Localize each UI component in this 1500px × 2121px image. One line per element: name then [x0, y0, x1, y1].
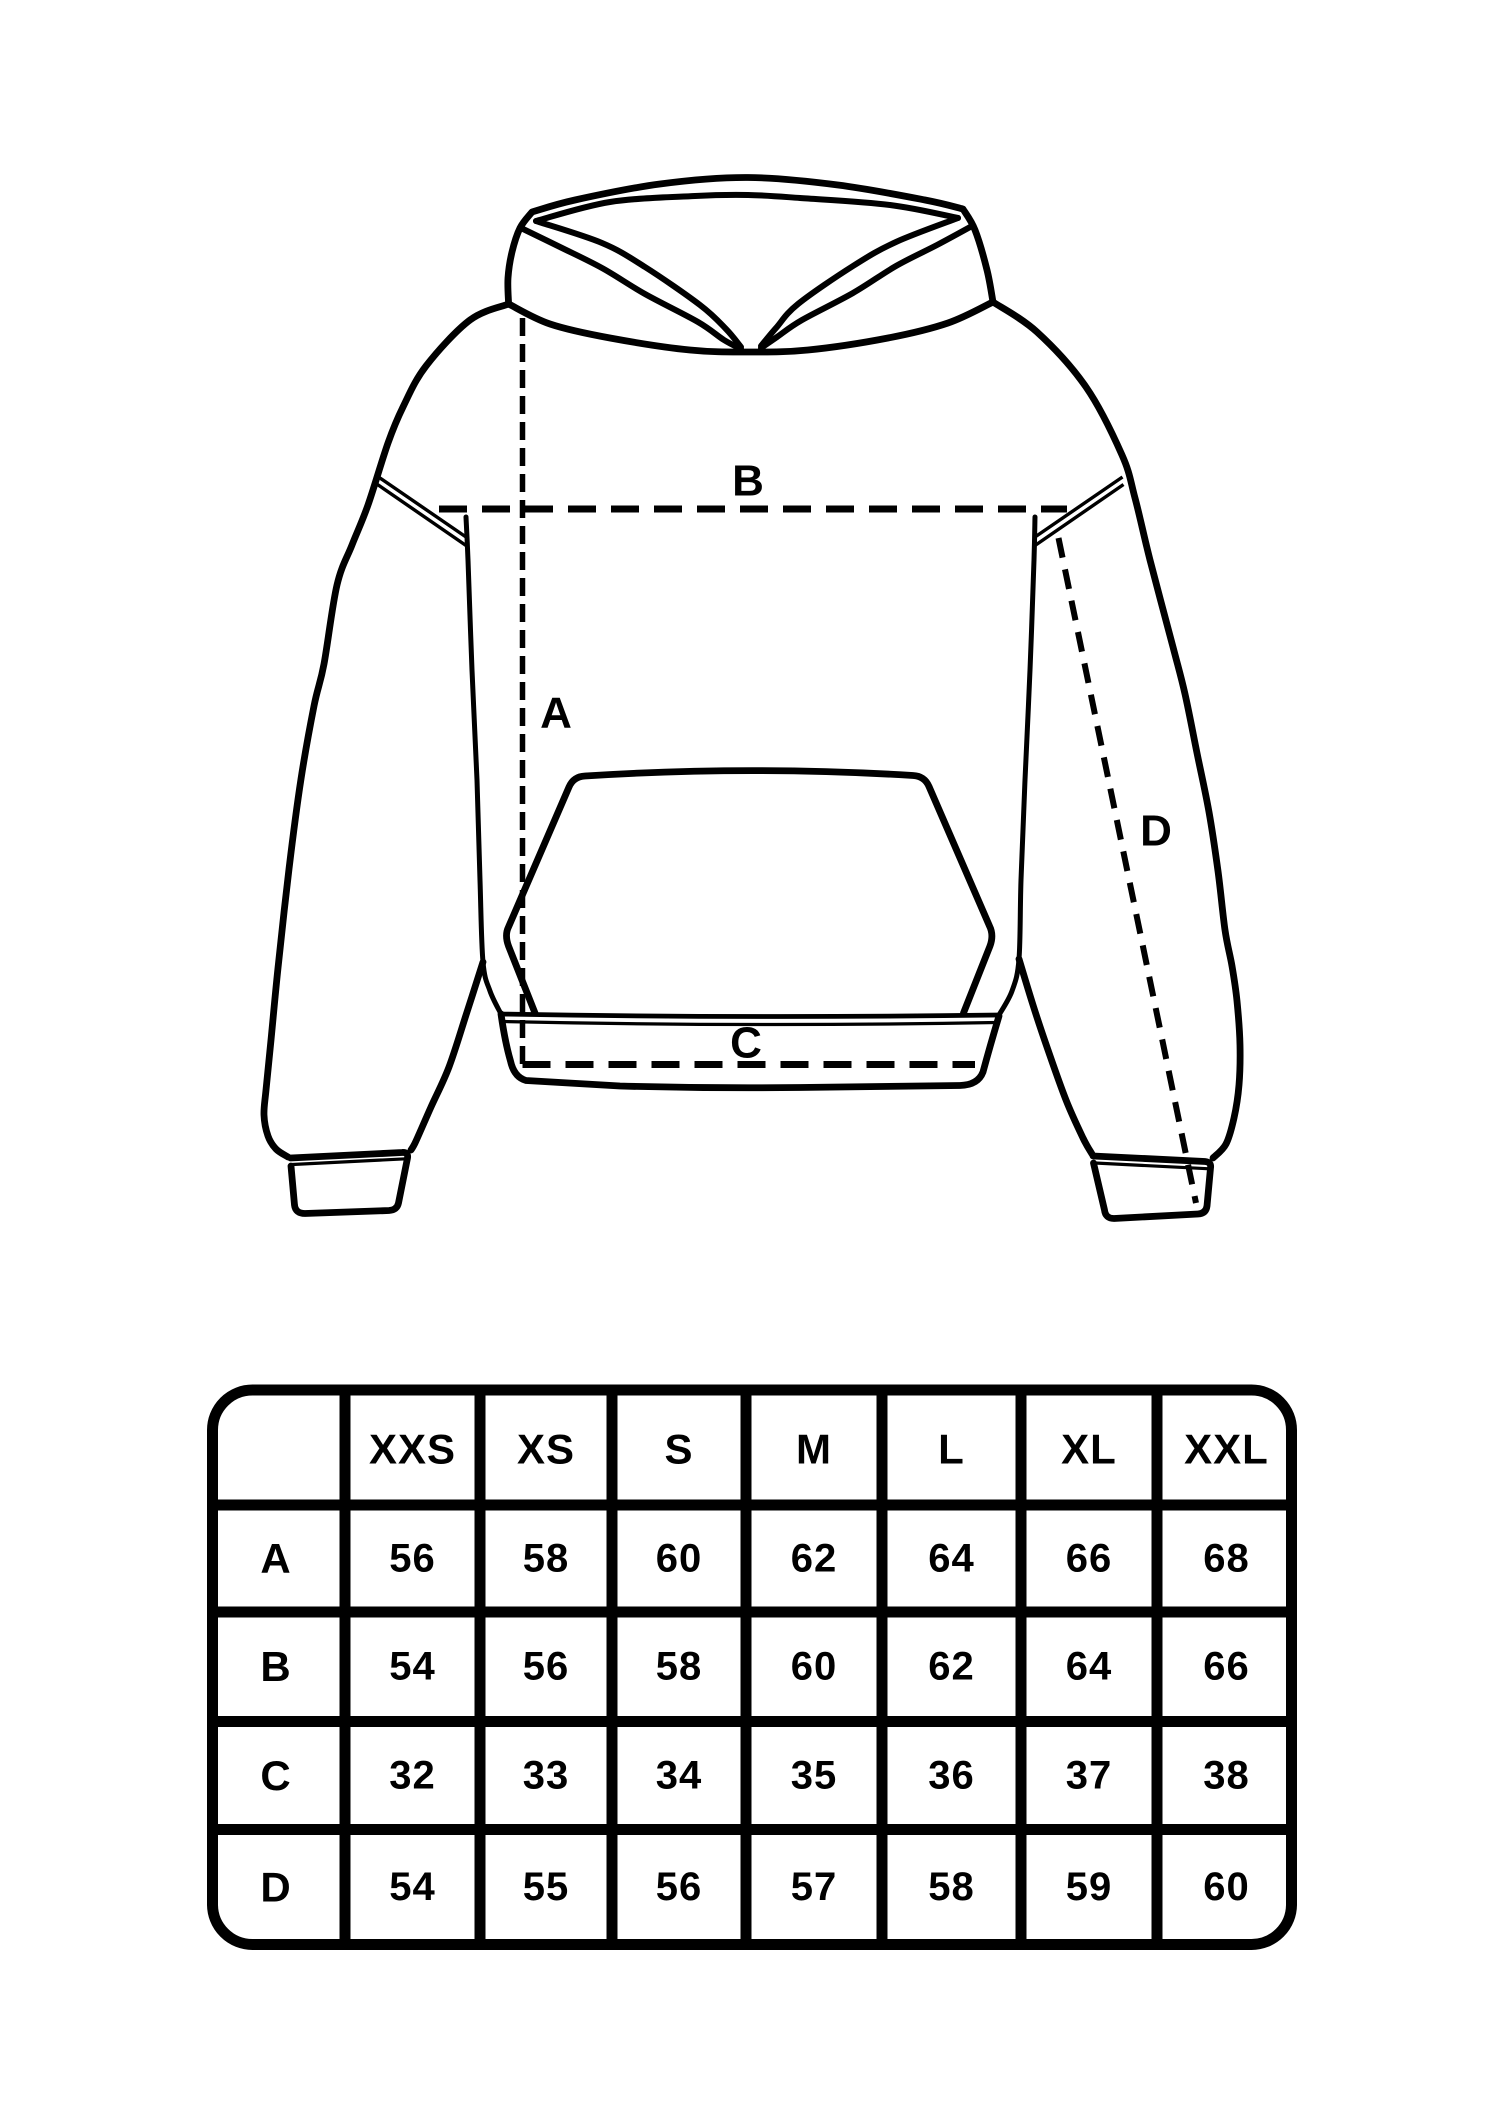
svg-text:66: 66	[1203, 1645, 1250, 1689]
svg-text:A: A	[260, 1535, 291, 1582]
svg-text:62: 62	[928, 1645, 975, 1689]
svg-text:37: 37	[1066, 1754, 1113, 1798]
svg-text:C: C	[260, 1752, 291, 1799]
svg-text:57: 57	[791, 1865, 838, 1909]
svg-text:M: M	[796, 1426, 832, 1473]
svg-text:68: 68	[1203, 1537, 1250, 1581]
svg-text:56: 56	[656, 1865, 703, 1909]
svg-text:60: 60	[791, 1645, 838, 1689]
svg-text:55: 55	[523, 1865, 570, 1909]
svg-text:XXS: XXS	[369, 1426, 456, 1473]
svg-text:B: B	[732, 457, 764, 506]
svg-text:32: 32	[389, 1754, 436, 1798]
svg-text:C: C	[730, 1019, 762, 1068]
svg-text:59: 59	[1066, 1865, 1113, 1909]
svg-text:XXL: XXL	[1184, 1426, 1269, 1473]
svg-text:58: 58	[928, 1865, 975, 1909]
svg-text:33: 33	[523, 1754, 570, 1798]
svg-text:A: A	[540, 689, 572, 738]
svg-text:B: B	[260, 1643, 291, 1690]
svg-text:XL: XL	[1061, 1426, 1117, 1473]
svg-text:L: L	[938, 1426, 965, 1473]
svg-text:35: 35	[791, 1754, 838, 1798]
svg-text:38: 38	[1203, 1754, 1250, 1798]
svg-text:66: 66	[1066, 1537, 1113, 1581]
svg-text:64: 64	[1066, 1645, 1113, 1689]
svg-text:58: 58	[523, 1537, 570, 1581]
svg-text:36: 36	[928, 1754, 975, 1798]
svg-text:54: 54	[389, 1645, 436, 1689]
svg-text:34: 34	[656, 1754, 703, 1798]
svg-text:56: 56	[523, 1645, 570, 1689]
svg-text:62: 62	[791, 1537, 838, 1581]
svg-text:56: 56	[389, 1537, 436, 1581]
svg-text:60: 60	[656, 1537, 703, 1581]
svg-text:S: S	[664, 1426, 693, 1473]
svg-text:D: D	[260, 1864, 291, 1911]
svg-text:58: 58	[656, 1645, 703, 1689]
svg-text:XS: XS	[517, 1426, 575, 1473]
svg-text:54: 54	[389, 1865, 436, 1909]
svg-text:D: D	[1140, 807, 1172, 856]
svg-text:64: 64	[928, 1537, 975, 1581]
svg-text:60: 60	[1203, 1865, 1250, 1909]
